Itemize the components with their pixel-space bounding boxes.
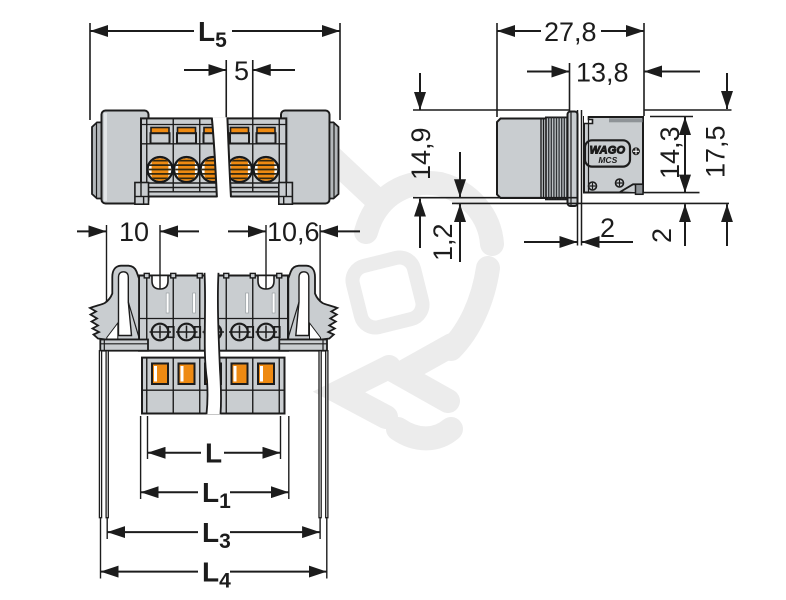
svg-text:14,9: 14,9 <box>406 127 436 180</box>
svg-text:27,8: 27,8 <box>544 17 597 47</box>
svg-text:1,2: 1,2 <box>428 223 458 261</box>
svg-text:10: 10 <box>119 217 149 247</box>
svg-text:5: 5 <box>234 56 249 86</box>
svg-text:2: 2 <box>647 228 677 243</box>
svg-text:L: L <box>205 438 222 469</box>
svg-text:MCS: MCS <box>598 155 617 165</box>
svg-text:13,8: 13,8 <box>576 58 629 88</box>
svg-text:2: 2 <box>600 213 615 243</box>
svg-text:10,6: 10,6 <box>267 217 320 247</box>
svg-text:17,5: 17,5 <box>701 125 731 178</box>
svg-text:14,3: 14,3 <box>655 126 685 179</box>
